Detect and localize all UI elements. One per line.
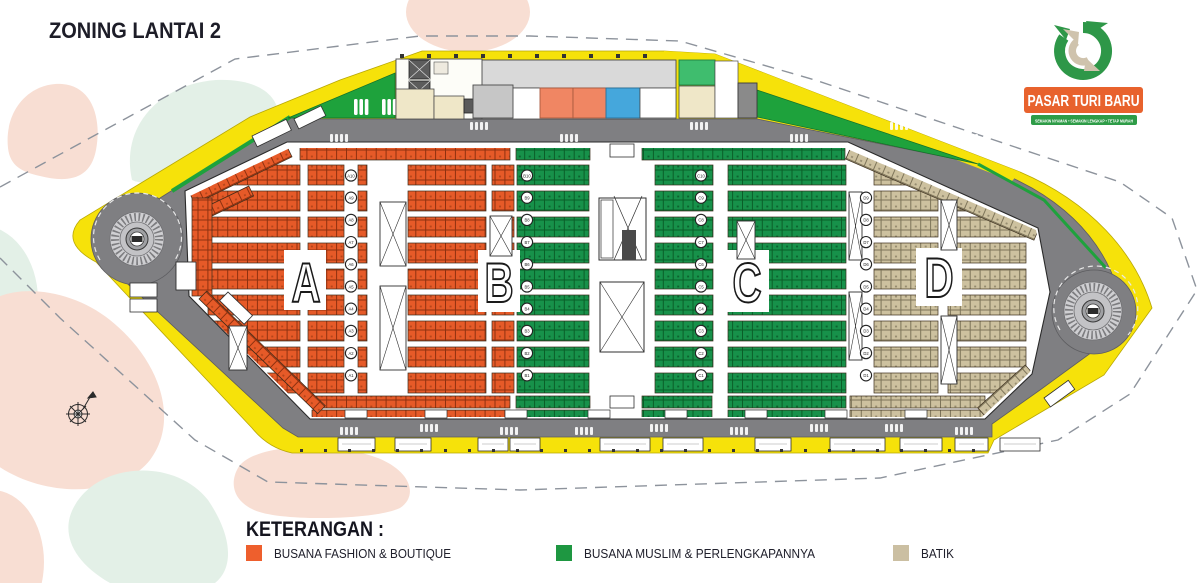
svg-text:A2: A2 bbox=[348, 351, 354, 356]
svg-text:C6: C6 bbox=[698, 262, 704, 267]
svg-text:C8: C8 bbox=[698, 218, 704, 223]
svg-text:B8: B8 bbox=[524, 218, 530, 223]
svg-text:C: C bbox=[732, 253, 761, 315]
svg-text:D4: D4 bbox=[863, 307, 869, 312]
svg-text:D2: D2 bbox=[863, 351, 869, 356]
svg-text:B7: B7 bbox=[524, 240, 530, 245]
svg-text:C7: C7 bbox=[698, 240, 704, 245]
svg-text:SEMAKIN NYAMAN • SEMAKIN LENGK: SEMAKIN NYAMAN • SEMAKIN LENGKAP • TETAP… bbox=[1035, 118, 1134, 123]
svg-text:B3: B3 bbox=[524, 329, 530, 334]
svg-text:A7: A7 bbox=[348, 240, 354, 245]
svg-text:A5: A5 bbox=[348, 284, 354, 289]
svg-text:C10: C10 bbox=[697, 173, 705, 178]
svg-text:B9: B9 bbox=[524, 196, 530, 201]
svg-text:C1: C1 bbox=[698, 373, 704, 378]
svg-text:B5: B5 bbox=[524, 284, 530, 289]
svg-text:B1: B1 bbox=[524, 373, 530, 378]
svg-text:BUSANA FASHION & BOUTIQUE: BUSANA FASHION & BOUTIQUE bbox=[274, 547, 451, 561]
svg-text:C5: C5 bbox=[698, 284, 704, 289]
svg-text:C4: C4 bbox=[698, 307, 704, 312]
svg-text:A1: A1 bbox=[348, 373, 354, 378]
svg-text:B2: B2 bbox=[524, 351, 530, 356]
svg-text:A10: A10 bbox=[347, 173, 355, 178]
svg-text:ZONING LANTAI 2: ZONING LANTAI 2 bbox=[49, 18, 221, 43]
svg-text:C3: C3 bbox=[698, 329, 704, 334]
svg-text:D5: D5 bbox=[863, 284, 869, 289]
svg-text:B6: B6 bbox=[524, 262, 530, 267]
svg-text:A: A bbox=[291, 253, 320, 315]
svg-text:A3: A3 bbox=[348, 329, 354, 334]
svg-text:D8: D8 bbox=[863, 218, 869, 223]
svg-text:D1: D1 bbox=[863, 373, 869, 378]
svg-text:A6: A6 bbox=[348, 262, 354, 267]
svg-text:D9: D9 bbox=[863, 196, 869, 201]
svg-text:KETERANGAN :: KETERANGAN : bbox=[246, 518, 384, 541]
svg-text:C2: C2 bbox=[698, 351, 704, 356]
svg-text:C9: C9 bbox=[698, 196, 704, 201]
svg-text:D7: D7 bbox=[863, 240, 869, 245]
svg-text:B4: B4 bbox=[524, 307, 530, 312]
svg-text:B: B bbox=[484, 253, 513, 315]
svg-text:PASAR TURI BARU: PASAR TURI BARU bbox=[1028, 93, 1140, 110]
svg-text:D6: D6 bbox=[863, 262, 869, 267]
svg-text:D: D bbox=[924, 248, 953, 310]
svg-text:D3: D3 bbox=[863, 329, 869, 334]
svg-text:A8: A8 bbox=[348, 218, 354, 223]
svg-text:A9: A9 bbox=[348, 196, 354, 201]
svg-text:B10: B10 bbox=[523, 173, 531, 178]
svg-text:BUSANA MUSLIM & PERLENGKAPANNY: BUSANA MUSLIM & PERLENGKAPANNYA bbox=[584, 547, 816, 561]
svg-text:A4: A4 bbox=[348, 307, 354, 312]
svg-text:BATIK: BATIK bbox=[921, 547, 955, 561]
